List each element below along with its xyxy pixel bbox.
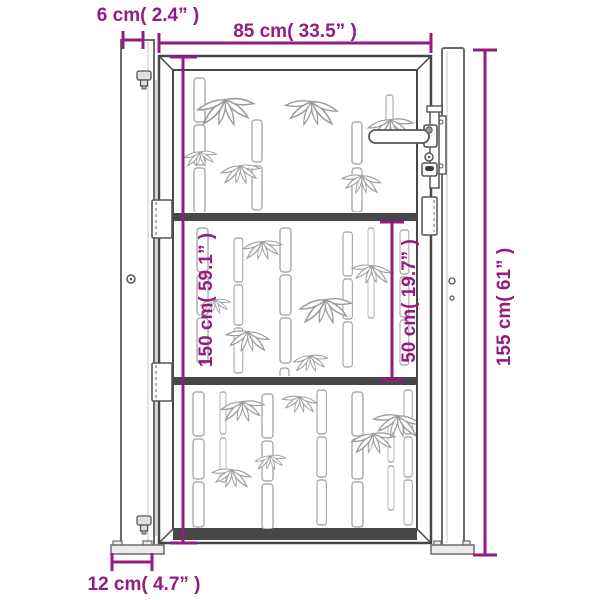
right-post-screw bbox=[450, 296, 454, 300]
gate-rail-bottom bbox=[173, 530, 417, 540]
hinge-lower bbox=[152, 363, 172, 401]
gate-rail-upper bbox=[174, 213, 417, 221]
latch-bar-cap bbox=[427, 106, 442, 112]
dimension-base-plate: 12 cm( 4.7” ) bbox=[88, 553, 201, 595]
dimension-base-plate-bracket bbox=[112, 553, 152, 571]
dimension-diagram: 6 cm( 2.4” ) 85 cm( 33.5” ) 150 cm( 59.1… bbox=[0, 0, 600, 600]
dimension-total-height: 155 cm( 61” ) bbox=[473, 50, 515, 555]
latch-bolt-center bbox=[428, 156, 431, 159]
dimension-post-width-label: 6 cm( 2.4” ) bbox=[97, 5, 199, 26]
left-base-plate bbox=[111, 545, 164, 554]
dimension-gate-width-label: 85 cm( 33.5” ) bbox=[233, 21, 357, 42]
latch-lower-plate bbox=[422, 197, 437, 235]
right-base-plate bbox=[431, 545, 474, 554]
dimension-mid-section-label: 50 cm( 19.7” ) bbox=[399, 239, 420, 363]
left-post-body bbox=[121, 40, 154, 546]
right-post-screw bbox=[449, 278, 455, 284]
dimension-gate-width: 85 cm( 33.5” ) bbox=[159, 21, 431, 53]
hinge-upper bbox=[152, 200, 172, 238]
handle-pivot-bolt bbox=[426, 127, 432, 133]
gate-handle bbox=[369, 130, 429, 143]
dimension-base-plate-label: 12 cm( 4.7” ) bbox=[88, 574, 201, 595]
dimension-gate-height-label: 150 cm( 59.1” ) bbox=[196, 233, 217, 367]
keyhole bbox=[425, 166, 434, 171]
gate-diagram-svg: 6 cm( 2.4” ) 85 cm( 33.5” ) 150 cm( 59.1… bbox=[0, 0, 600, 600]
post-screw-center bbox=[130, 278, 133, 281]
dimension-total-height-label: 155 cm( 61” ) bbox=[494, 248, 515, 366]
